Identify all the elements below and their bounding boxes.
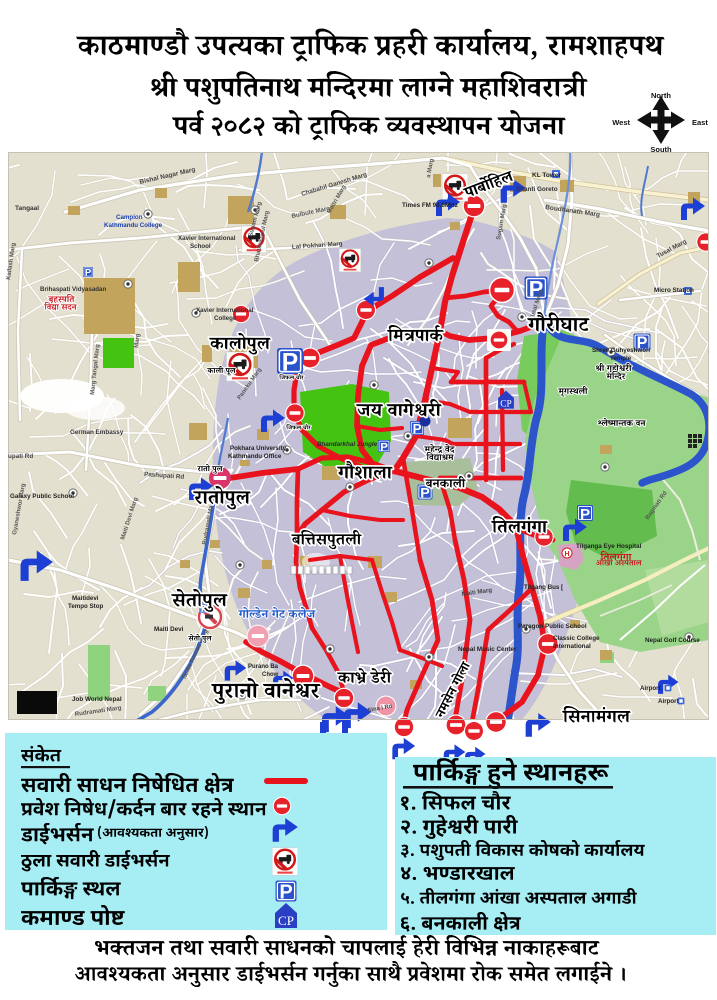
svg-text:Xavier International: Xavier International [196, 307, 254, 314]
svg-text:Maitidevi: Maitidevi [72, 595, 99, 602]
svg-text:Nepal Music Center: Nepal Music Center [458, 646, 517, 653]
svg-text:International: International [553, 643, 591, 650]
svg-text:North: North [651, 91, 671, 100]
svg-text:Bhandarkhal Jungle: Bhandarkhal Jungle [317, 441, 378, 448]
svg-text:Classic College: Classic College [553, 635, 600, 642]
svg-text:Xavier International: Xavier International [178, 235, 236, 242]
svg-text:Maiti Devi: Maiti Devi [154, 626, 184, 633]
svg-text:Tangaal: Tangaal [15, 205, 39, 212]
svg-text:Shanti Goreto: Shanti Goreto [516, 186, 558, 193]
svg-text:Pokhara University: Pokhara University [230, 445, 287, 452]
svg-text:Kathmandu College: Kathmandu College [104, 222, 163, 229]
svg-text:KL Tower: KL Tower [532, 172, 561, 179]
svg-text:Paragon Public School: Paragon Public School [518, 623, 587, 630]
svg-text:Nepal Golf Course: Nepal Golf Course [645, 637, 700, 644]
svg-text:Times FM 90.6MHz: Times FM 90.6MHz [402, 202, 458, 209]
svg-text:Airport: Airport [640, 685, 661, 692]
svg-text:East: East [692, 118, 708, 127]
svg-text:Job World Nepal: Job World Nepal [72, 696, 122, 703]
svg-text:Tilganga Eye Hospital: Tilganga Eye Hospital [576, 543, 642, 550]
svg-text:Temple: Temple [610, 355, 632, 362]
svg-text:Airport: Airport [658, 698, 679, 705]
svg-text:Tempo Stop: Tempo Stop [68, 603, 104, 610]
svg-text:Shree Guhyeshwori: Shree Guhyeshwori [592, 347, 650, 354]
svg-text:Campion: Campion [116, 214, 143, 221]
svg-text:Tilgang Bus [: Tilgang Bus [ [524, 584, 563, 591]
svg-text:West: West [612, 118, 630, 127]
svg-text:School: School [190, 243, 211, 250]
svg-text:Micro Station: Micro Station [654, 287, 694, 294]
svg-text:Purano Ba: Purano Ba [248, 664, 279, 670]
svg-text:upati Rd: upati Rd [8, 453, 33, 460]
svg-text:Brihaspati Vidyasadan: Brihaspati Vidyasadan [40, 286, 106, 293]
svg-text:Chow: Chow [262, 672, 279, 678]
svg-text:H: H [564, 551, 569, 558]
svg-text:German Embassy: German Embassy [70, 429, 124, 436]
svg-text:Kathmandu Office: Kathmandu Office [228, 453, 282, 460]
svg-text:South: South [650, 145, 672, 154]
svg-text:College: College [214, 315, 237, 322]
